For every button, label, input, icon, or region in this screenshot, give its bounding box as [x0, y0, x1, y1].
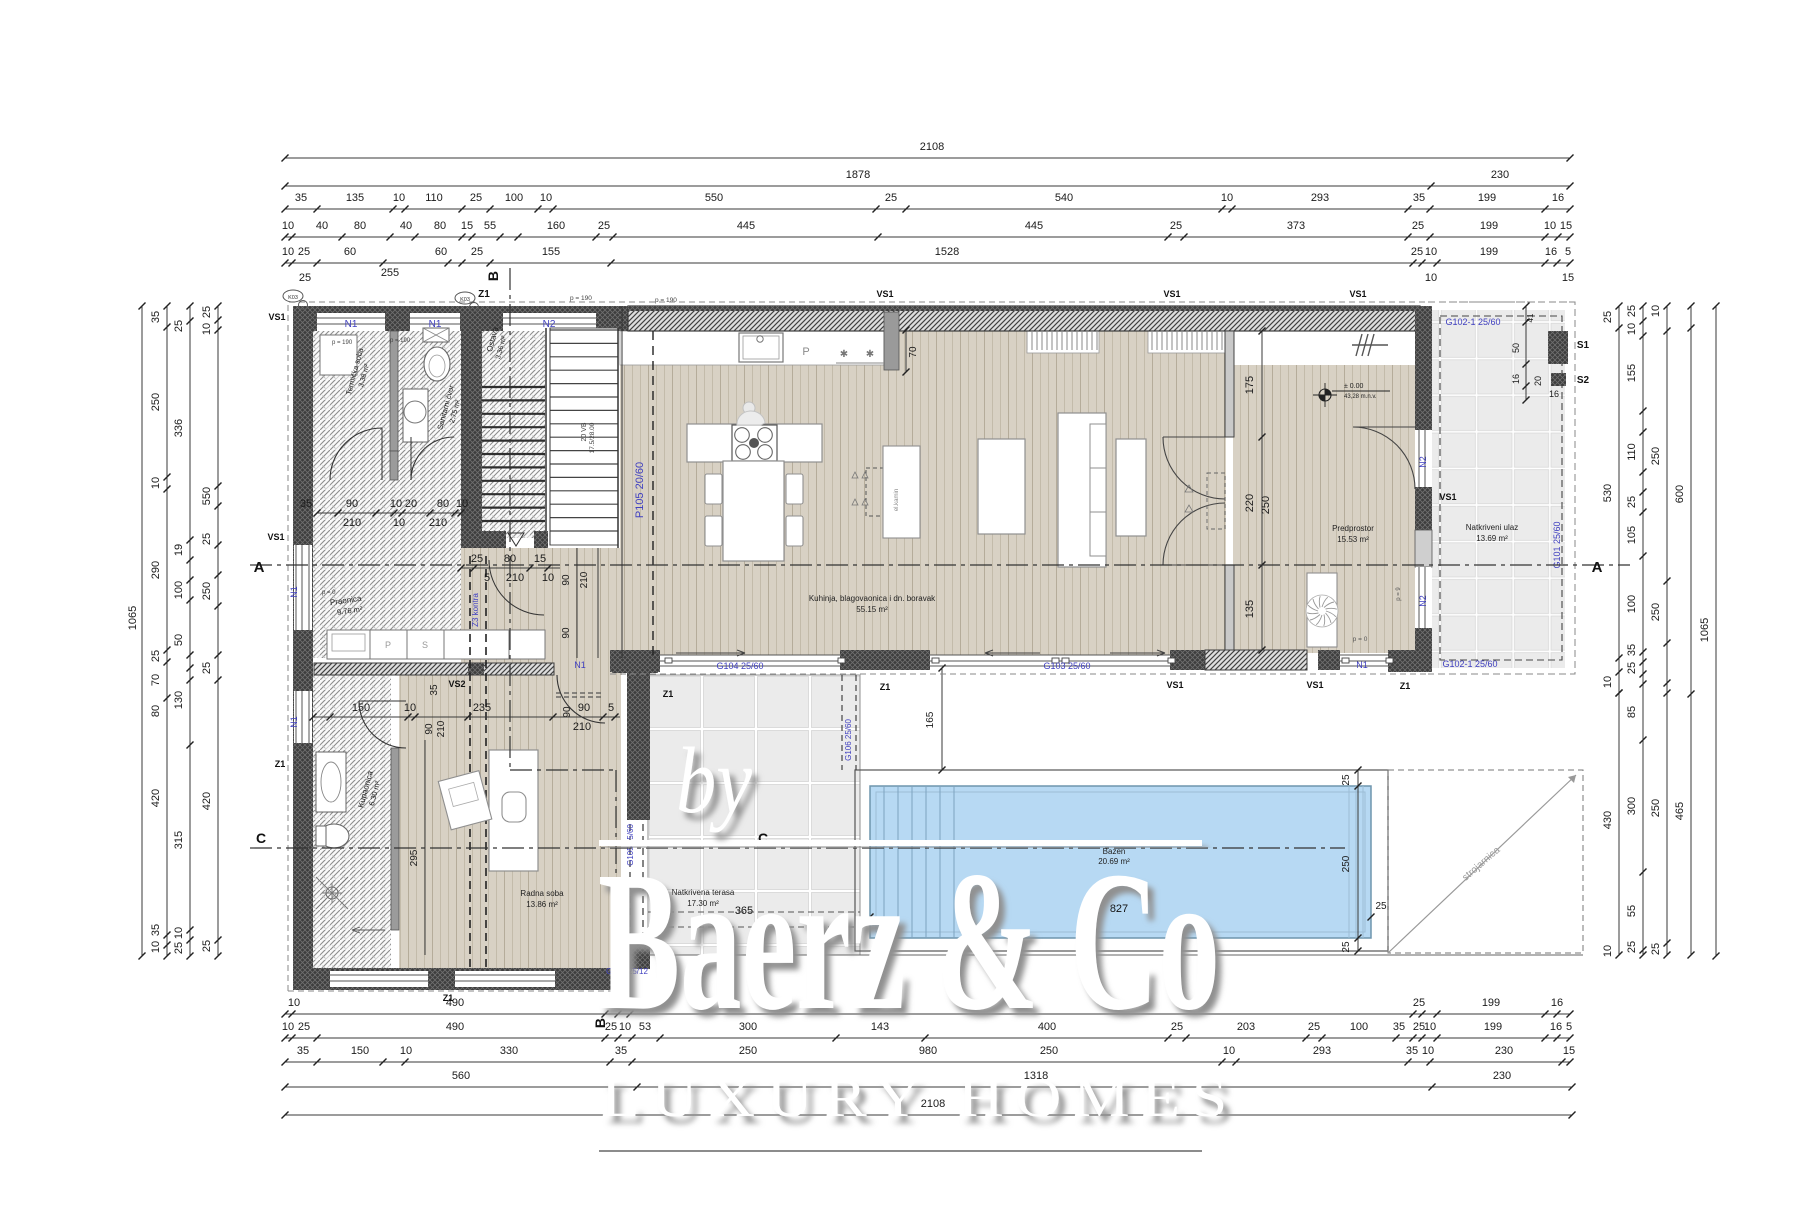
svg-text:199: 199	[1478, 192, 1496, 204]
svg-text:25: 25	[1411, 246, 1423, 258]
svg-text:35: 35	[150, 924, 162, 936]
svg-text:15: 15	[1560, 220, 1572, 232]
svg-text:10: 10	[1221, 192, 1233, 204]
svg-text:10: 10	[540, 192, 552, 204]
svg-text:15: 15	[461, 220, 473, 232]
svg-text:100: 100	[173, 581, 185, 599]
svg-text:el.kamin: el.kamin	[894, 489, 900, 511]
svg-text:VS1: VS1	[267, 532, 284, 542]
svg-text:25: 25	[1602, 311, 1614, 323]
svg-text:2108: 2108	[920, 141, 944, 153]
svg-text:50: 50	[173, 634, 185, 646]
svg-text:VS1: VS1	[268, 312, 285, 322]
svg-text:10: 10	[282, 1021, 294, 1033]
svg-text:10: 10	[201, 323, 213, 335]
svg-text:B: B	[485, 271, 501, 281]
svg-text:10: 10	[390, 498, 402, 510]
svg-text:445: 445	[737, 220, 755, 232]
svg-text:10: 10	[150, 941, 162, 953]
svg-text:250: 250	[150, 393, 162, 411]
svg-text:465: 465	[1674, 802, 1686, 820]
svg-text:20 VB: 20 VB	[581, 422, 588, 441]
svg-text:10: 10	[1602, 945, 1614, 957]
svg-text:15: 15	[1563, 1045, 1575, 1057]
svg-text:15: 15	[1562, 272, 1574, 284]
svg-text:60: 60	[344, 246, 356, 258]
svg-text:N2: N2	[1418, 456, 1428, 468]
svg-text:35: 35	[300, 498, 312, 510]
svg-text:16: 16	[1552, 192, 1564, 204]
svg-text:35: 35	[1393, 1021, 1405, 1033]
svg-text:250: 250	[1650, 799, 1662, 817]
svg-text:250: 250	[1341, 855, 1352, 872]
svg-text:80: 80	[434, 220, 446, 232]
svg-text:G101 25/60: G101 25/60	[1552, 521, 1562, 568]
svg-text:550: 550	[201, 487, 213, 505]
svg-text:A: A	[1592, 559, 1603, 576]
svg-text:420: 420	[150, 789, 162, 807]
svg-text:80: 80	[437, 498, 449, 510]
svg-text:35: 35	[295, 192, 307, 204]
svg-text:Z3 kontra: Z3 kontra	[471, 593, 480, 627]
svg-text:80: 80	[150, 705, 162, 717]
svg-text:VS2: VS2	[448, 679, 465, 689]
svg-text:70: 70	[150, 674, 162, 686]
svg-text:199: 199	[1484, 1021, 1502, 1033]
svg-text:100: 100	[1350, 1021, 1368, 1033]
svg-text:10: 10	[150, 477, 162, 489]
svg-text:80: 80	[354, 220, 366, 232]
svg-text:90: 90	[561, 574, 572, 586]
svg-text:VS1: VS1	[876, 289, 893, 299]
svg-text:16: 16	[1549, 389, 1559, 399]
svg-text:10: 10	[542, 572, 554, 584]
svg-text:25: 25	[471, 553, 483, 565]
svg-text:110: 110	[1626, 443, 1638, 461]
svg-text:540: 540	[1055, 192, 1073, 204]
svg-text:41: 41	[1526, 313, 1535, 322]
svg-text:C: C	[256, 830, 266, 846]
svg-text:10: 10	[400, 1045, 412, 1057]
svg-text:90: 90	[578, 702, 590, 714]
svg-text:N1: N1	[1356, 660, 1368, 670]
svg-text:210: 210	[343, 517, 361, 529]
svg-text:25: 25	[201, 306, 213, 318]
svg-text:Z1: Z1	[1400, 681, 1411, 691]
svg-text:90: 90	[346, 498, 358, 510]
svg-text:20: 20	[1533, 376, 1543, 386]
svg-text:N1: N1	[345, 319, 358, 330]
svg-text:35: 35	[297, 1045, 309, 1057]
svg-text:P: P	[802, 346, 809, 358]
svg-text:290: 290	[150, 561, 162, 579]
svg-text:10: 10	[282, 246, 294, 258]
svg-text:230: 230	[1493, 1070, 1511, 1082]
svg-text:210: 210	[436, 720, 447, 737]
svg-text:LUXURY HOMES: LUXURY HOMES	[601, 1068, 1239, 1128]
svg-text:293: 293	[1311, 192, 1329, 204]
svg-text:10: 10	[1650, 305, 1662, 317]
svg-text:199: 199	[1480, 220, 1498, 232]
svg-text:300: 300	[1626, 797, 1638, 815]
svg-text:60: 60	[435, 246, 447, 258]
svg-text:5: 5	[608, 702, 614, 714]
svg-text:25: 25	[299, 272, 311, 284]
svg-text:55: 55	[1626, 905, 1638, 917]
svg-text:330: 330	[500, 1045, 518, 1057]
svg-text:Predprostor: Predprostor	[1332, 524, 1374, 533]
svg-text:1065: 1065	[127, 606, 139, 630]
svg-text:25: 25	[201, 940, 213, 952]
svg-text:25: 25	[201, 533, 213, 545]
svg-text:A: A	[254, 559, 265, 576]
svg-text:160: 160	[547, 220, 565, 232]
svg-text:10: 10	[288, 997, 300, 1009]
svg-text:50: 50	[1511, 343, 1521, 353]
svg-text:G103 25/60: G103 25/60	[1043, 661, 1090, 671]
svg-text:165: 165	[925, 711, 936, 728]
svg-text:25: 25	[201, 662, 213, 674]
svg-text:16: 16	[1550, 1021, 1562, 1033]
svg-text:VS1: VS1	[1306, 680, 1323, 690]
svg-text:295: 295	[409, 849, 420, 866]
svg-text:G106 25/60: G106 25/60	[844, 719, 853, 761]
svg-text:p = 190: p = 190	[332, 340, 353, 346]
svg-text:210: 210	[506, 572, 524, 584]
svg-text:560: 560	[452, 1070, 470, 1082]
svg-text:203: 203	[1237, 1021, 1255, 1033]
svg-text:336: 336	[173, 419, 185, 437]
svg-text:25: 25	[1626, 662, 1638, 674]
svg-text:155: 155	[1626, 364, 1638, 382]
svg-text:255: 255	[381, 267, 399, 279]
svg-text:550: 550	[705, 192, 723, 204]
svg-text:25: 25	[1341, 941, 1352, 953]
svg-text:430: 430	[1602, 811, 1614, 829]
svg-text:16: 16	[1545, 246, 1557, 258]
svg-text:10: 10	[1425, 272, 1437, 284]
svg-text:Natkriveni ulaz: Natkriveni ulaz	[1466, 523, 1518, 532]
svg-text:VS1: VS1	[1163, 289, 1180, 299]
svg-text:43,28 m.n.v.: 43,28 m.n.v.	[1344, 394, 1377, 400]
svg-text:25: 25	[1626, 305, 1638, 317]
svg-text:250: 250	[1650, 447, 1662, 465]
svg-text:10: 10	[393, 517, 405, 529]
svg-text:± 0.00: ± 0.00	[1344, 383, 1364, 390]
svg-text:20: 20	[405, 498, 417, 510]
svg-text:199: 199	[1480, 246, 1498, 258]
svg-text:445: 445	[1025, 220, 1043, 232]
svg-text:230: 230	[1495, 1045, 1513, 1057]
svg-text:293: 293	[1313, 1045, 1331, 1057]
svg-text:25: 25	[1308, 1021, 1320, 1033]
svg-text:130: 130	[173, 691, 185, 709]
svg-text:90: 90	[424, 723, 435, 735]
svg-text:25: 25	[150, 650, 162, 662]
svg-text:25: 25	[298, 246, 310, 258]
svg-text:10: 10	[393, 192, 405, 204]
svg-text:13.86 m²: 13.86 m²	[526, 900, 558, 909]
svg-text:16: 16	[1511, 374, 1521, 384]
svg-text:230: 230	[1491, 169, 1509, 181]
svg-text:135: 135	[346, 192, 364, 204]
svg-text:25: 25	[1650, 943, 1662, 955]
svg-text:Radna soba: Radna soba	[520, 889, 564, 898]
svg-text:15: 15	[534, 553, 546, 565]
svg-text:490: 490	[446, 1021, 464, 1033]
svg-text:5: 5	[1566, 1021, 1572, 1033]
svg-text:40: 40	[400, 220, 412, 232]
svg-text:315: 315	[173, 831, 185, 849]
svg-text:70: 70	[908, 346, 919, 358]
svg-text:55.15 m²: 55.15 m²	[856, 605, 888, 614]
svg-text:p = 190: p = 190	[390, 338, 411, 344]
svg-text:155: 155	[542, 246, 560, 258]
svg-text:235: 235	[473, 702, 491, 714]
svg-text:p = 190: p = 190	[570, 295, 592, 302]
svg-text:25: 25	[1626, 941, 1638, 953]
svg-text:10: 10	[404, 702, 416, 714]
svg-text:55: 55	[484, 220, 496, 232]
svg-text:250: 250	[1650, 603, 1662, 621]
svg-text:25: 25	[1413, 997, 1425, 1009]
svg-text:G102-1 25/60: G102-1 25/60	[1442, 659, 1497, 669]
svg-text:10: 10	[1425, 246, 1437, 258]
svg-text:530: 530	[1602, 484, 1614, 502]
svg-text:✱: ✱	[866, 349, 874, 360]
svg-text:p = 0: p = 0	[322, 590, 336, 596]
svg-text:25: 25	[471, 246, 483, 258]
svg-text:35: 35	[150, 311, 162, 323]
svg-text:10: 10	[1223, 1045, 1235, 1057]
svg-text:Z1: Z1	[478, 289, 490, 300]
svg-text:13.69 m²: 13.69 m²	[1476, 534, 1508, 543]
svg-text:10: 10	[1626, 323, 1638, 335]
svg-text:150: 150	[352, 702, 370, 714]
svg-text:35: 35	[1413, 192, 1425, 204]
svg-text:16: 16	[1551, 997, 1563, 1009]
svg-text:175: 175	[1244, 376, 1256, 394]
svg-text:90: 90	[561, 627, 572, 639]
svg-text:G104 25/60: G104 25/60	[716, 661, 763, 671]
svg-text:25: 25	[298, 1021, 310, 1033]
svg-text:250: 250	[1260, 496, 1272, 514]
svg-text:✱: ✱	[840, 349, 848, 360]
svg-text:p = 190: p = 190	[655, 297, 677, 304]
svg-text:25: 25	[598, 220, 610, 232]
svg-text:Z1: Z1	[275, 759, 286, 769]
svg-text:G102-1 25/60: G102-1 25/60	[1445, 317, 1500, 327]
svg-text:100: 100	[1626, 595, 1638, 613]
svg-text:10: 10	[173, 927, 185, 939]
svg-text:VS1: VS1	[1439, 492, 1456, 502]
svg-text:S1: S1	[1577, 340, 1590, 351]
svg-text:19: 19	[173, 544, 185, 556]
svg-text:P: P	[385, 640, 391, 650]
svg-text:10: 10	[282, 220, 294, 232]
svg-text:15.53 m²: 15.53 m²	[1337, 535, 1369, 544]
svg-text:N2: N2	[1418, 595, 1428, 607]
svg-text:373: 373	[1287, 220, 1305, 232]
svg-text:600: 600	[1674, 485, 1686, 503]
svg-text:p = 9: p = 9	[1396, 587, 1402, 601]
svg-text:220: 220	[1244, 494, 1256, 512]
svg-text:10: 10	[1602, 676, 1614, 688]
svg-text:25: 25	[173, 320, 185, 332]
svg-text:35: 35	[1626, 644, 1638, 656]
svg-text:25: 25	[1341, 774, 1352, 786]
svg-text:by: by	[676, 729, 752, 833]
svg-text:110: 110	[425, 192, 443, 204]
svg-text:25: 25	[1375, 901, 1387, 912]
svg-text:40: 40	[316, 220, 328, 232]
svg-text:10: 10	[1544, 220, 1556, 232]
svg-text:25: 25	[470, 192, 482, 204]
svg-text:150: 150	[351, 1045, 369, 1057]
svg-text:Z1: Z1	[880, 682, 891, 692]
svg-text:VS1: VS1	[1166, 680, 1183, 690]
svg-text:25: 25	[1626, 496, 1638, 508]
svg-text:135: 135	[1244, 600, 1256, 618]
svg-text:105: 105	[1626, 526, 1638, 544]
svg-text:25: 25	[1412, 220, 1424, 232]
svg-text:Kuhinja, blagovaonica i dn. bo: Kuhinja, blagovaonica i dn. boravak	[809, 594, 936, 603]
svg-text:210: 210	[579, 571, 590, 588]
svg-text:490: 490	[446, 997, 464, 1009]
svg-text:10: 10	[1424, 1021, 1436, 1033]
svg-text:Baerz & Co: Baerz & Co	[598, 831, 1220, 1052]
svg-text:K03: K03	[460, 297, 470, 303]
svg-text:420: 420	[201, 792, 213, 810]
svg-text:100: 100	[505, 192, 523, 204]
svg-text:N1: N1	[574, 660, 586, 670]
svg-text:210: 210	[429, 517, 447, 529]
svg-text:S: S	[422, 640, 428, 650]
svg-text:VS1: VS1	[1349, 289, 1366, 299]
svg-text:25: 25	[885, 192, 897, 204]
svg-text:5: 5	[1565, 246, 1571, 258]
svg-text:35: 35	[1406, 1045, 1418, 1057]
svg-text:35: 35	[429, 684, 440, 696]
svg-text:90: 90	[562, 706, 573, 718]
svg-text:250: 250	[201, 582, 213, 600]
svg-text:1065: 1065	[1699, 618, 1711, 642]
svg-text:p = 0: p = 0	[1353, 636, 1368, 643]
svg-text:85: 85	[1626, 706, 1638, 718]
svg-text:25: 25	[1170, 220, 1182, 232]
svg-text:10: 10	[1422, 1045, 1434, 1057]
svg-text:S2: S2	[1577, 375, 1590, 386]
svg-text:K03: K03	[288, 295, 298, 301]
svg-text:N1: N1	[289, 716, 299, 728]
svg-text:1878: 1878	[846, 169, 870, 181]
svg-text:25: 25	[173, 942, 185, 954]
svg-text:1528: 1528	[935, 246, 959, 258]
svg-text:17.5/28.00: 17.5/28.00	[589, 422, 596, 453]
svg-text:Z1: Z1	[663, 689, 674, 699]
svg-text:N1: N1	[289, 586, 299, 598]
svg-text:210: 210	[573, 721, 591, 733]
svg-text:5: 5	[484, 572, 490, 584]
svg-text:10: 10	[456, 498, 468, 510]
svg-text:199: 199	[1482, 997, 1500, 1009]
svg-text:P105 20/60: P105 20/60	[634, 462, 646, 518]
